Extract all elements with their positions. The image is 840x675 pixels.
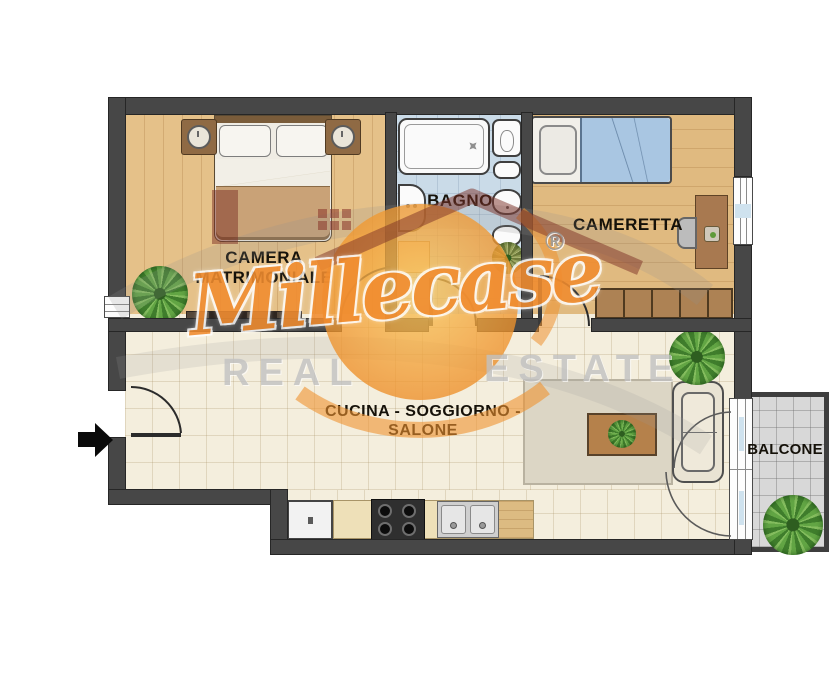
bathroom-door-arc (431, 278, 476, 326)
entrance-arrow-head (95, 423, 113, 457)
label-line: CAMERA (178, 248, 350, 268)
label-kids-room: CAMERETTA (558, 215, 698, 235)
label-master-bedroom: CAMERA MATRIMONIALE (178, 248, 350, 288)
door-arcs-layer (0, 0, 840, 675)
entrance-arrow-icon (78, 432, 95, 447)
label-line: MATRIMONIALE (178, 268, 350, 288)
balcony-door-arc (666, 472, 731, 536)
entrance-door-arc (131, 387, 181, 433)
balcony-door-arc (674, 412, 731, 468)
floor-plan: CAMERA MATRIMONIALE BAGNO CAMERETTA CUCI… (0, 0, 840, 675)
label-bathroom: BAGNO (424, 191, 496, 211)
label-balcony: BALCONE (747, 441, 823, 459)
kids-room-door-arc (540, 276, 589, 326)
label-living-room: CUCINA - SOGGIORNO - SALONE (290, 403, 556, 441)
